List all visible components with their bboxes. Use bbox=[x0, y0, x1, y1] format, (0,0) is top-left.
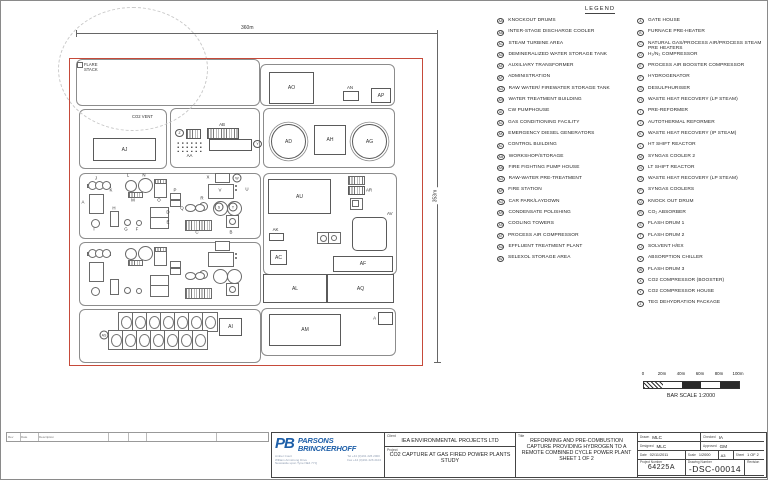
client-name: IEA ENVIRONMENTAL PROJECTS LTD bbox=[385, 438, 515, 444]
scale-value: 1/2000 bbox=[699, 453, 711, 457]
plot-block-AB bbox=[207, 128, 239, 139]
legend-item: TFLASH DRUM 2 bbox=[637, 233, 768, 244]
legend-item-label: DESULPHURISER bbox=[648, 86, 690, 92]
process-marker-R: R bbox=[200, 196, 203, 201]
legend-item-code: D bbox=[637, 52, 644, 58]
plot-block-AD: AD bbox=[271, 124, 306, 159]
plot-block-label-Z: Z bbox=[175, 129, 184, 137]
process-marker-K: K bbox=[110, 188, 113, 193]
checked-value: IA bbox=[719, 435, 723, 440]
cooling-tower-cell bbox=[202, 312, 218, 332]
legend-item-code: AJ bbox=[497, 120, 504, 126]
legend-item-code: C bbox=[637, 41, 644, 47]
scale-bar: BAR SCALE 1:2000 020m40m60m80m100m bbox=[641, 371, 741, 405]
legend-item-code: G bbox=[637, 86, 644, 92]
scale-tick-label: 20m bbox=[658, 371, 667, 376]
scale-bar-segments bbox=[643, 381, 740, 389]
legend-item-label: KNOCKOUT DRUMS bbox=[508, 18, 555, 24]
legend-item-label: FIRE STATION bbox=[508, 187, 542, 193]
legend-item: AAKNOCKOUT DRUMS bbox=[497, 18, 629, 29]
legend-item-code: AS bbox=[497, 222, 504, 228]
legend-item-code: V bbox=[637, 256, 644, 262]
designed-value: MLC bbox=[656, 444, 666, 449]
legend-item-label: CO₂ ABSORBER bbox=[648, 210, 686, 216]
legend-item-code: I bbox=[637, 109, 644, 115]
legend-item-code: M bbox=[637, 154, 644, 160]
legend-item-code: AD bbox=[497, 52, 504, 58]
cooling-tower-cell bbox=[192, 330, 208, 350]
process-marker-E: E bbox=[167, 220, 170, 225]
legend-item-code: Q bbox=[637, 199, 644, 205]
legend-item-label: PROCESS AIR COMPRESSOR bbox=[508, 233, 579, 239]
plot-block-AQ: AQ bbox=[327, 274, 394, 303]
process-marker-Q: Q bbox=[180, 206, 183, 211]
legend-item-label: WASTE HEAT RECOVERY (LP STEAM) bbox=[648, 176, 738, 182]
legend-item-code: AI bbox=[497, 109, 504, 115]
legend-item: AMWORKSHOP/STORAGE bbox=[497, 154, 629, 165]
scale-tick-label: 60m bbox=[696, 371, 705, 376]
legend-item: YCO2 COMPRESSOR HOUSE bbox=[637, 289, 768, 300]
cooling-tower-fan bbox=[111, 334, 122, 347]
legend-item-code: AO bbox=[497, 176, 505, 182]
revision-column-label: Rev bbox=[8, 435, 13, 439]
plot-block-label-AK: AK bbox=[273, 227, 279, 232]
client-panel: Client IEA ENVIRONMENTAL PROJECTS LTD Pr… bbox=[385, 433, 516, 477]
scale-segment bbox=[663, 382, 682, 388]
legend-item-code: K bbox=[637, 131, 644, 137]
legend-item: OWASTE HEAT RECOVERY (LP STEAM) bbox=[637, 176, 768, 187]
process-marker-B: B bbox=[230, 230, 233, 235]
legend-item: LHT SHIFT REACTOR bbox=[637, 142, 768, 153]
scale-segment bbox=[701, 382, 720, 388]
cooling-tower-fan bbox=[167, 334, 178, 347]
equipment-hatch bbox=[154, 179, 167, 184]
equipment-circle bbox=[195, 204, 205, 212]
legend-item-label: AUTOTHERMAL REFORMER bbox=[648, 120, 715, 126]
process-marker-D: D bbox=[166, 210, 169, 215]
legend-item-code: AU bbox=[497, 244, 504, 250]
legend-item: USOLVENT H/EX bbox=[637, 244, 768, 255]
drawn-label: Drawn bbox=[640, 435, 649, 439]
legend-item: AHWATER TREATMENT BUILDING bbox=[497, 97, 629, 108]
legend-item: SFLASH DRUM 1 bbox=[637, 221, 768, 232]
legend-item-code: B bbox=[637, 30, 644, 36]
legend-item-label: CONDENSATE POLISHING bbox=[508, 210, 570, 216]
legend-item: APFIRE STATION bbox=[497, 187, 629, 198]
legend-item: QKNOCK OUT DRUM bbox=[637, 199, 768, 210]
legend-item-code: AM bbox=[497, 154, 505, 160]
revision-column-divider bbox=[216, 433, 217, 441]
equipment-circle bbox=[138, 246, 153, 261]
legend-item-label: ADMINISTRATION bbox=[508, 74, 550, 80]
legend-item-label: ABSORPTION CHILLER bbox=[648, 255, 703, 261]
dimension-tick bbox=[76, 30, 77, 37]
company-contacts: Tel +44 (0)191 226 2000 Fax +44 (0)191 2… bbox=[347, 455, 381, 466]
legend-item: AEAUXILIARY TRANSFORMER bbox=[497, 63, 629, 74]
legend-item-label: FLASH DRUM 3 bbox=[648, 267, 684, 273]
legend-item-label: LT SHIFT REACTOR bbox=[648, 165, 695, 171]
equipment-rect bbox=[170, 268, 181, 275]
legend-item-label: TEG DEHYDRATION PACKAGE bbox=[648, 300, 720, 306]
legend-item: JAUTOTHERMAL REFORMER bbox=[637, 120, 768, 131]
plot-block-AJ: AJ bbox=[93, 138, 156, 161]
plot-block-label-AB: AB bbox=[219, 122, 225, 127]
plot-block-label-AA: AA bbox=[187, 153, 193, 158]
process-marker-X: X bbox=[207, 175, 210, 180]
process-marker-G: G bbox=[124, 227, 127, 232]
pb-logo: PB bbox=[275, 437, 294, 450]
process-marker-J: J bbox=[95, 176, 97, 181]
legend-item: AJGAS CONDITIONING FACILITY bbox=[497, 120, 629, 131]
equipment-circle bbox=[136, 288, 142, 294]
legend-title: LEGEND bbox=[585, 6, 615, 14]
revision-column-label: Date bbox=[21, 435, 27, 439]
equipment-circle bbox=[124, 287, 131, 294]
flare-radius-circle bbox=[58, 7, 208, 131]
plot-block-label-AR: AR bbox=[366, 187, 372, 192]
legend-item-code: AB bbox=[497, 30, 504, 36]
legend-item-code: AT bbox=[497, 233, 504, 239]
plot-block-Z bbox=[186, 129, 201, 139]
legend-item-label: CW PUMPHOUSE bbox=[508, 108, 549, 114]
revision-column-label: Description bbox=[39, 435, 54, 439]
legend-item-code: AQ bbox=[497, 199, 505, 205]
legend-item-label: RAW-WATER PRE-TREATMENT bbox=[509, 176, 582, 182]
legend-item: AQCAR PARK/LAYDOWN bbox=[497, 199, 629, 210]
equipment-rect bbox=[170, 261, 181, 268]
revision-label: Revision bbox=[747, 460, 759, 464]
project-number-value: 64225A bbox=[640, 464, 683, 471]
equipment-hatch bbox=[185, 288, 212, 299]
plot-block-AM: AM bbox=[269, 314, 341, 346]
equipment-dots bbox=[234, 252, 239, 261]
date-label: Date bbox=[640, 453, 647, 457]
cooling-tower-fan bbox=[163, 316, 174, 329]
plot-block-AO: AO bbox=[269, 72, 314, 104]
legend-item-code: AV bbox=[497, 256, 504, 262]
equipment-rect bbox=[215, 173, 230, 183]
legend-item: ANFIRE FIGHTING PUMP HOUSE bbox=[497, 165, 629, 176]
legend-item-label: PRE-REFORMER bbox=[648, 108, 688, 114]
plot-block-AH: AH bbox=[314, 125, 346, 155]
legend-item: PSYNGAS COOLERS bbox=[637, 187, 768, 198]
drawing-sheet: 360m 353m FLARE STACK CO2 VENT AJABZYAAA… bbox=[0, 0, 768, 480]
legend-item: AGATE HOUSE bbox=[637, 18, 768, 29]
legend-item-label: FLASH DRUM 1 bbox=[648, 221, 684, 227]
legend-item-label: CO2 COMPRESSOR HOUSE bbox=[648, 289, 714, 295]
dimension-width-label: 360m bbox=[239, 25, 256, 31]
legend-column-right: AGATE HOUSEBFURNACE PRE-HEATERCNATURAL G… bbox=[637, 18, 768, 312]
equipment-circle bbox=[213, 269, 228, 284]
scale-bar-caption: BAR SCALE 1:2000 bbox=[641, 393, 741, 399]
legend-item-label: CO2 COMPRESSOR (BOOSTER) bbox=[648, 278, 724, 284]
process-marker-V: V bbox=[219, 188, 222, 193]
cooling-tower-fan bbox=[135, 316, 146, 329]
legend-item: EPROCESS AIR BOOSTER COMPRESSOR bbox=[637, 63, 768, 74]
date-value: 02/11/2011 bbox=[650, 453, 668, 457]
legend-item-code: J bbox=[637, 120, 644, 126]
co2-vent-label: CO2 VENT bbox=[132, 114, 153, 119]
legend-item: AUEFFLUENT TREATMENT PLANT bbox=[497, 244, 629, 255]
paper-size: A3 bbox=[721, 453, 726, 458]
plot-block-AN bbox=[343, 91, 359, 101]
cooling-tower-fan bbox=[191, 316, 202, 329]
plot-block-AU: AU bbox=[268, 179, 331, 214]
legend-item-code: L bbox=[637, 143, 644, 149]
legend-item-label: WORKSHOP/STORAGE bbox=[509, 154, 564, 160]
process-marker-O: O bbox=[157, 198, 160, 203]
legend-item-code: AK bbox=[497, 131, 504, 137]
equipment-rect bbox=[170, 193, 181, 200]
equipment-circle bbox=[124, 219, 131, 226]
company-address: Amber Court William Armstrong Drive Newc… bbox=[275, 455, 317, 466]
revision-strip: RevDateDescription bbox=[6, 432, 269, 442]
equipment-dots bbox=[234, 184, 239, 193]
legend-item-label: FURNACE PRE-HEATER bbox=[648, 29, 705, 35]
project-name: CO2 CAPTURE AT GAS FIRED POWER PLANTS ST… bbox=[385, 452, 515, 464]
equipment-rect bbox=[77, 62, 83, 68]
legend-item-code: AR bbox=[497, 210, 504, 216]
revision-column-divider bbox=[128, 433, 129, 441]
legend-item-code: AL bbox=[497, 143, 504, 149]
process-marker-S: S bbox=[215, 203, 224, 212]
legend-item-code: AN bbox=[497, 165, 504, 171]
legend-item: ASCOOLING TOWERS bbox=[497, 221, 629, 232]
legend-item-code: R bbox=[637, 210, 644, 216]
legend-item: ABINTER-STAGE DISCHARGE COOLER bbox=[497, 29, 629, 40]
legend-item-label: SYNGAS COOLER 2 bbox=[648, 154, 695, 160]
equipment-circle bbox=[227, 269, 242, 284]
legend-item-label: H₂/N₂ COMPRESSOR bbox=[648, 52, 698, 58]
legend-item-label: GAS CONDITIONING FACILITY bbox=[508, 120, 580, 126]
equipment-hatch bbox=[154, 247, 167, 252]
title-block: PB PARSONS BRINCKERHOFF Amber Court Will… bbox=[271, 432, 767, 478]
plot-block-A bbox=[378, 312, 393, 325]
cooling-tower-fan bbox=[177, 316, 188, 329]
equipment-rect bbox=[215, 241, 230, 251]
legend-item-code: AC bbox=[497, 41, 504, 47]
cooling-tower-fan bbox=[149, 316, 160, 329]
equipment-circle bbox=[229, 286, 236, 293]
dimension-height-label: 353m bbox=[432, 188, 438, 205]
process-marker-U: U bbox=[245, 187, 248, 192]
legend-item: DH₂/N₂ COMPRESSOR bbox=[637, 52, 768, 63]
legend-item-label: WASTE HEAT RECOVERY (IP STEAM) bbox=[648, 131, 736, 137]
scale-label: Scale bbox=[688, 453, 696, 457]
cooling-tower-fan bbox=[125, 334, 136, 347]
legend-item-code: AP bbox=[497, 188, 504, 194]
legend-item-label: INTER-STAGE DISCHARGE COOLER bbox=[508, 29, 594, 35]
cooling-tower-fan bbox=[181, 334, 192, 347]
equipment-circle bbox=[91, 287, 100, 296]
equipment-circle bbox=[136, 220, 142, 226]
plot-block-label-A: A bbox=[373, 315, 376, 320]
legend-item: NLT SHIFT REACTOR bbox=[637, 165, 768, 176]
legend-item: FHYDROGENATOR bbox=[637, 74, 768, 85]
drawing-number-value: -DSC-00014 bbox=[688, 464, 742, 474]
drawn-value: MLC bbox=[652, 435, 662, 440]
equipment-circle bbox=[102, 249, 111, 258]
designed-label: Designed bbox=[640, 444, 653, 448]
process-marker-F: F bbox=[136, 227, 139, 232]
legend-item-code: H bbox=[637, 97, 644, 103]
legend-item-label: GATE HOUSE bbox=[648, 18, 680, 24]
company-panel: PB PARSONS BRINCKERHOFF Amber Court Will… bbox=[272, 433, 385, 477]
scale-segment bbox=[720, 382, 739, 388]
equipment-rect bbox=[110, 211, 119, 227]
legend-item: BFURNACE PRE-HEATER bbox=[637, 29, 768, 40]
plot-block-AV bbox=[352, 217, 387, 251]
legend-item-code: E bbox=[637, 63, 644, 69]
equipment-hatch bbox=[128, 260, 143, 266]
legend-item-code: AG bbox=[497, 86, 505, 92]
process-marker-T: T bbox=[229, 203, 238, 212]
legend-item: MSYNGAS COOLER 2 bbox=[637, 154, 768, 165]
scale-tick-label: 100m bbox=[733, 371, 744, 376]
plot-block-AA bbox=[176, 141, 203, 152]
dimension-tick bbox=[434, 362, 441, 363]
process-marker-I: I bbox=[93, 227, 94, 232]
checked-label: Checked bbox=[703, 435, 716, 439]
legend-item-label: WATER TREATMENT BUILDING bbox=[508, 97, 581, 103]
legend-item-label: STEAM TURBINE AREA bbox=[508, 41, 563, 47]
plot-block-label-AV: AV bbox=[387, 211, 393, 216]
legend-item-label: NATURAL GAS/PROCESS AIR/PROCESS STEAM PR… bbox=[648, 41, 768, 52]
legend-item-code: AH bbox=[497, 97, 504, 103]
legend-item: ATPROCESS AIR COMPRESSOR bbox=[497, 233, 629, 244]
cooling-tower-fan bbox=[195, 334, 206, 347]
legend-column-left: AAKNOCKOUT DRUMSABINTER-STAGE DISCHARGE … bbox=[497, 18, 629, 267]
legend-item: HWASTE HEAT RECOVERY (LP STEAM) bbox=[637, 97, 768, 108]
legend-item-code: P bbox=[637, 188, 644, 194]
equipment-hatch bbox=[348, 176, 365, 185]
legend-item-label: KNOCK OUT DRUM bbox=[648, 199, 694, 205]
legend-item-code: A bbox=[637, 18, 644, 24]
plot-block-AR bbox=[348, 186, 365, 195]
cooling-tower-fan bbox=[205, 316, 216, 329]
equipment-circle bbox=[229, 218, 236, 225]
process-marker-AS: AS bbox=[100, 331, 109, 340]
process-marker-W: W bbox=[233, 174, 242, 183]
legend-item-label: COOLING TOWERS bbox=[508, 221, 554, 227]
approved-label: Approved bbox=[703, 444, 717, 448]
flare-stack-label: FLARE STACK bbox=[84, 63, 103, 73]
approved-value: GM bbox=[720, 444, 727, 449]
process-marker-A: A bbox=[82, 200, 85, 205]
legend-item: ZTEG DEHYDRATION PACKAGE bbox=[637, 300, 768, 311]
legend-item-label: SELEXOL STORAGE AREA bbox=[508, 255, 571, 261]
legend-item-label: WASTE HEAT RECOVERY (LP STEAM) bbox=[648, 97, 738, 103]
legend-item: AKEMERGENCY DIESEL GENERATORS bbox=[497, 131, 629, 142]
process-marker-N: N bbox=[142, 173, 145, 178]
plot-block-AL: AL bbox=[263, 274, 327, 303]
process-marker-P: P bbox=[174, 188, 177, 193]
approvals-panel: DrawnMLC CheckedIA DesignedMLC ApprovedG… bbox=[638, 433, 764, 477]
equipment-rect bbox=[110, 279, 119, 295]
revision-column-divider bbox=[146, 433, 147, 441]
legend-item-label: PROCESS AIR BOOSTER COMPRESSOR bbox=[648, 63, 744, 69]
legend-item-code: F bbox=[637, 75, 644, 81]
legend-item-label: CAR PARK/LAYDOWN bbox=[509, 199, 560, 205]
process-marker-L: L bbox=[127, 173, 129, 178]
process-marker-M: M bbox=[131, 198, 135, 203]
legend-item-code: W bbox=[637, 267, 644, 273]
legend-item-label: DEMINERALIZED WATER STORAGE TANK bbox=[508, 52, 607, 58]
plot-block-Y bbox=[209, 139, 252, 151]
equipment-rect bbox=[208, 252, 234, 267]
company-name: PARSONS BRINCKERHOFF bbox=[298, 437, 356, 452]
process-marker-H: H bbox=[112, 206, 115, 211]
legend-item: ARCONDENSATE POLISHING bbox=[497, 210, 629, 221]
fax-line: Fax +44 (0)191 226 2104 bbox=[347, 459, 381, 463]
plot-block-AF: AF bbox=[333, 256, 393, 272]
plot-block-label-Y: Y bbox=[253, 140, 262, 148]
legend-item-code: AF bbox=[497, 75, 504, 81]
legend-item: AVSELEXOL STORAGE AREA bbox=[497, 255, 629, 266]
scale-tick-label: 80m bbox=[715, 371, 724, 376]
legend-item-label: CONTROL BUILDING bbox=[508, 142, 557, 148]
legend-item-label: EMERGENCY DIESEL GENERATORS bbox=[508, 131, 594, 137]
plot-block-AC: AC bbox=[270, 250, 287, 265]
legend-item-label: AUXILIARY TRANSFORMER bbox=[508, 63, 573, 69]
legend-item: CNATURAL GAS/PROCESS AIR/PROCESS STEAM P… bbox=[637, 41, 768, 52]
legend-item: AICW PUMPHOUSE bbox=[497, 108, 629, 119]
legend-item-label: RAW WATER/ FIREWATER STORAGE TANK bbox=[509, 86, 610, 92]
equipment-circle bbox=[331, 235, 337, 241]
legend-item-label: EFFLUENT TREATMENT PLANT bbox=[508, 244, 582, 250]
legend-item: KWASTE HEAT RECOVERY (IP STEAM) bbox=[637, 131, 768, 142]
legend-item: IPRE-REFORMER bbox=[637, 108, 768, 119]
plot-block-label-AN: AN bbox=[347, 85, 353, 90]
plot-block-AK bbox=[269, 233, 284, 241]
equipment-rect bbox=[352, 200, 359, 207]
cooling-tower-fan bbox=[139, 334, 150, 347]
legend-item: GDESULPHURISER bbox=[637, 86, 768, 97]
plot-block-AG: AG bbox=[352, 124, 387, 159]
sheet-label: Sheet bbox=[736, 453, 744, 457]
revision-column-divider bbox=[108, 433, 109, 441]
equipment-rect bbox=[154, 250, 167, 266]
equipment-circle bbox=[138, 178, 153, 193]
legend-item-label: SOLVENT H/EX bbox=[648, 244, 684, 250]
scale-tick-label: 40m bbox=[677, 371, 686, 376]
legend-item: ALCONTROL BUILDING bbox=[497, 142, 629, 153]
equipment-rect bbox=[89, 262, 104, 282]
equipment-circle bbox=[320, 235, 327, 242]
legend-item-label: SYNGAS COOLERS bbox=[648, 187, 694, 193]
legend-item-code: U bbox=[637, 244, 644, 250]
legend-item: RCO₂ ABSORBER bbox=[637, 210, 768, 221]
legend-item-code: AA bbox=[497, 18, 504, 24]
cooling-tower-fan bbox=[153, 334, 164, 347]
legend-item-code: N bbox=[637, 165, 644, 171]
cooling-tower-fan bbox=[121, 316, 132, 329]
legend-item-code: T bbox=[637, 233, 644, 239]
legend-item: ACSTEAM TURBINE AREA bbox=[497, 41, 629, 52]
process-marker-C: C bbox=[195, 230, 198, 235]
legend-item-code: X bbox=[637, 278, 644, 284]
company-name-2: BRINCKERHOFF bbox=[298, 444, 356, 453]
scale-segment bbox=[644, 382, 663, 388]
scale-tick-label: 0 bbox=[642, 371, 644, 376]
legend-item: XCO2 COMPRESSOR (BOOSTER) bbox=[637, 278, 768, 289]
legend-item: AGRAW WATER/ FIREWATER STORAGE TANK bbox=[497, 86, 629, 97]
legend-item-label: HT SHIFT REACTOR bbox=[648, 142, 696, 148]
legend-item-code: AE bbox=[497, 63, 504, 69]
legend-item-label: FIRE FIGHTING PUMP HOUSE bbox=[508, 165, 579, 171]
plot-block-AP: AP bbox=[371, 88, 391, 103]
equipment-rect bbox=[150, 285, 169, 297]
